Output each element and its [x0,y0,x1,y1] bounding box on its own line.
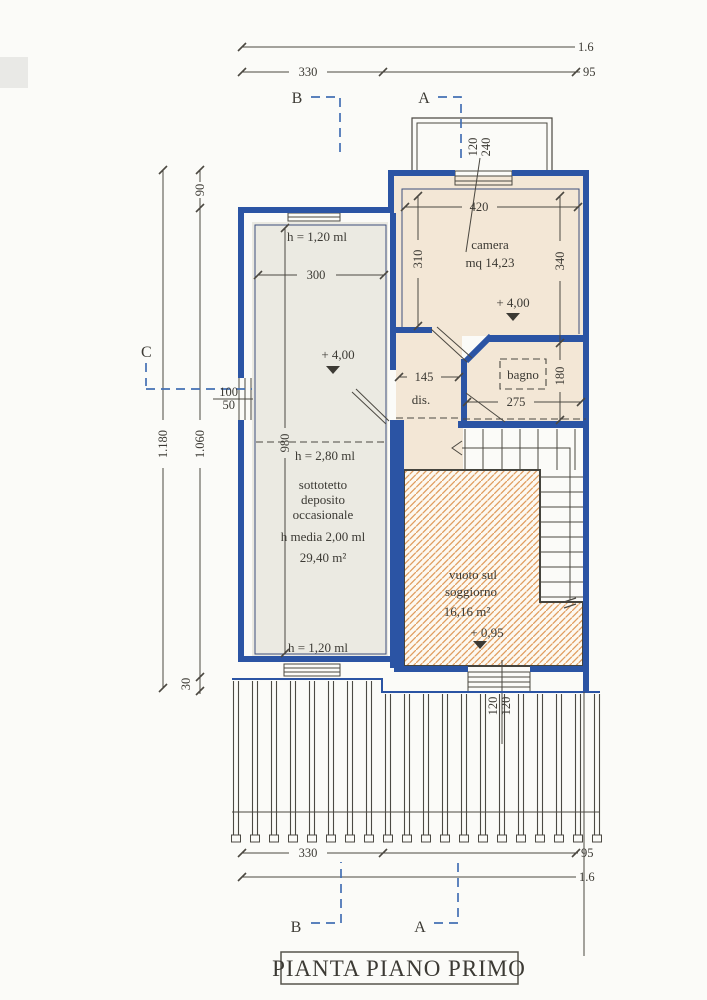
sottotetto-h-mid: h = 2,80 ml [295,448,355,463]
dim-bagno-275: 275 [507,395,526,409]
section-line-a-top [438,97,461,163]
bagno-room-label: bagno [507,367,539,382]
dim-window-top-240: 240 [479,138,493,157]
window-sottotetto-top [288,213,340,221]
section-label-a-top: A [418,90,430,107]
section-label-c: C [141,344,152,361]
floor-plan-drawing: 1.6 330 95 B A C 120 240 90 1.180 1.060 … [0,0,707,1000]
sottotetto-level-label: + 4,00 [321,347,354,362]
dim-left-1060: 1.060 [193,430,207,458]
title-block: PIANTA PIANO PRIMO [272,952,526,984]
vuoto-area-label: 16,16 m² [444,604,491,619]
dim-bottom-95: 95 [581,846,594,860]
dim-top-95: 95 [583,65,596,79]
dis-room-label: dis. [412,392,430,407]
dim-camera-420: 420 [470,200,489,214]
section-label-a-bottom: A [414,919,426,936]
dim-top-330: 330 [299,65,318,79]
dim-sottotetto-980: 980 [278,434,292,453]
dim-bagno-180: 180 [553,367,567,386]
dim-bottom-total: 1.6 [579,870,595,884]
sottotetto-floor [252,222,388,656]
section-line-a-bottom [434,862,458,923]
window-sottotetto-bottom [284,664,340,676]
sottotetto-name-2: deposito [301,492,345,507]
section-label-b-bottom: B [291,919,302,936]
dim-dis-145: 145 [415,370,434,384]
sottotetto-h-bottom: h = 1,20 ml [288,640,348,655]
sottotetto-name-1: sottotetto [299,477,347,492]
dim-camera-340: 340 [553,252,567,271]
scan-artifact [0,57,28,88]
dim-left-90: 90 [193,184,207,197]
dim-window-bottom-120b: 120 [499,697,513,716]
camera-level-label: + 4,00 [496,295,529,310]
vuoto-name-2: soggiorno [445,584,497,599]
dim-window-left-100: 100 [219,385,238,399]
sottotetto-h-media: h media 2,00 ml [281,529,366,544]
railing-bars [232,681,602,842]
sottotetto-area-label: 29,40 m² [300,550,347,565]
dim-left-30: 30 [179,678,193,691]
dim-window-top-120: 120 [466,138,480,157]
drawing-title: PIANTA PIANO PRIMO [272,956,526,981]
camera-room-label: camera [471,237,509,252]
section-line-b-bottom [311,862,341,923]
section-line-b-top [311,97,340,155]
camera-area-label: mq 14,23 [465,255,514,270]
sottotetto-h-top: h = 1,20 ml [287,229,347,244]
dim-window-bottom-120a: 120 [486,697,500,716]
dim-sottotetto-300: 300 [307,268,326,282]
dim-camera-310: 310 [411,250,425,269]
dim-top-total: 1.6 [578,40,594,54]
section-label-b-top: B [292,90,303,107]
vuoto-level-label: + 0,95 [470,625,503,640]
dim-bottom-330: 330 [299,846,318,860]
vuoto-name-1: vuoto sul [449,567,497,582]
floor-plan-sheet: 1.6 330 95 B A C 120 240 90 1.180 1.060 … [0,0,707,1000]
balcony-bottom [232,679,602,956]
dim-left-1180: 1.180 [156,430,170,458]
dim-window-left-50: 50 [223,398,236,412]
sottotetto-name-3: occasionale [293,507,354,522]
